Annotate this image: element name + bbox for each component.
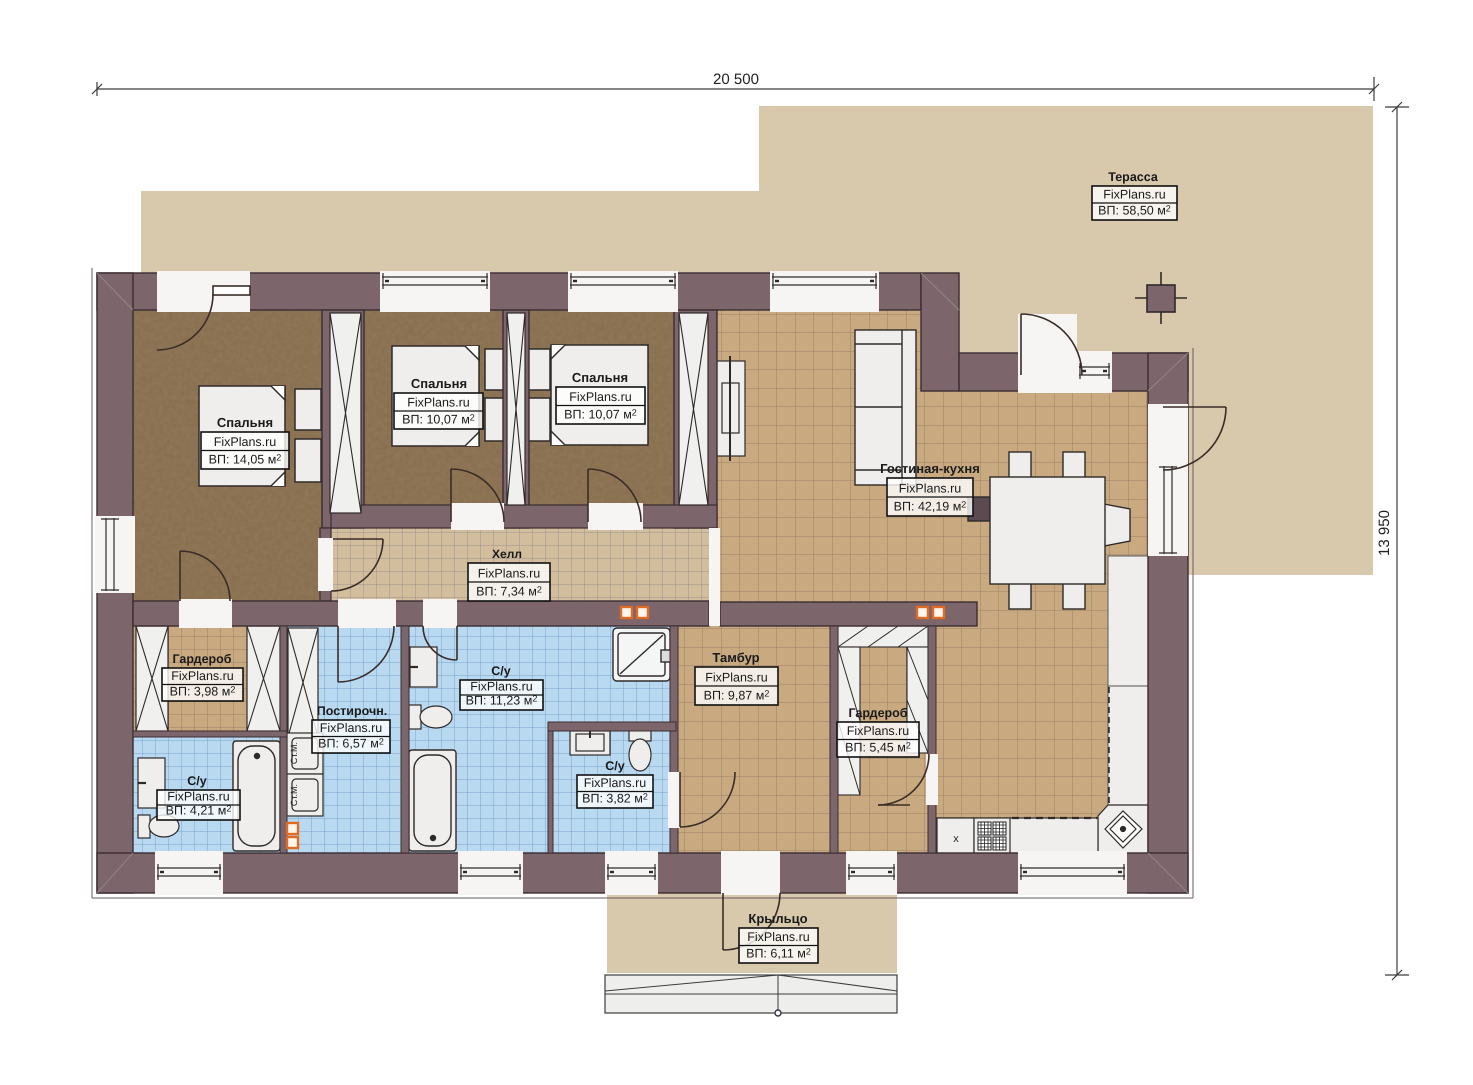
- svg-text:FixPlans.ru: FixPlans.ru: [407, 396, 470, 410]
- svg-text:Гардероб: Гардероб: [172, 652, 231, 666]
- svg-text:FixPlans.ru: FixPlans.ru: [171, 669, 234, 683]
- svg-text:20 500: 20 500: [713, 71, 759, 88]
- svg-text:х: х: [953, 833, 959, 845]
- svg-text:Спальня: Спальня: [411, 376, 467, 391]
- svg-text:FixPlans.ru: FixPlans.ru: [747, 930, 810, 944]
- svg-text:Гардероб: Гардероб: [848, 706, 907, 720]
- svg-text:ВП: 9,87 м2: ВП: 9,87 м2: [704, 689, 770, 703]
- svg-text:FixPlans.ru: FixPlans.ru: [1103, 188, 1166, 202]
- svg-text:Крыльцо: Крыльцо: [748, 911, 807, 926]
- svg-text:FixPlans.ru: FixPlans.ru: [167, 790, 230, 804]
- svg-text:FixPlans.ru: FixPlans.ru: [470, 680, 533, 694]
- svg-text:13 950: 13 950: [1376, 510, 1393, 556]
- svg-text:FixPlans.ru: FixPlans.ru: [705, 671, 768, 685]
- svg-text:ВП: 10,07 м2: ВП: 10,07 м2: [564, 408, 637, 422]
- svg-text:ВП: 5,45 м2: ВП: 5,45 м2: [845, 741, 911, 755]
- svg-text:FixPlans.ru: FixPlans.ru: [478, 567, 541, 581]
- svg-text:FixPlans.ru: FixPlans.ru: [847, 724, 910, 738]
- svg-text:Ст.М.: Ст.М.: [289, 742, 299, 764]
- svg-text:С/у: С/у: [187, 774, 207, 788]
- svg-text:FixPlans.ru: FixPlans.ru: [569, 390, 632, 404]
- svg-text:ВП: 6,57 м2: ВП: 6,57 м2: [318, 737, 384, 751]
- svg-text:ВП: 11,23 м2: ВП: 11,23 м2: [466, 694, 538, 708]
- svg-text:ВП: 3,82 м2: ВП: 3,82 м2: [582, 792, 648, 806]
- svg-text:ВП: 7,34 м2: ВП: 7,34 м2: [476, 585, 542, 599]
- svg-text:Хелл: Хелл: [492, 547, 522, 561]
- svg-text:FixPlans.ru: FixPlans.ru: [899, 482, 962, 496]
- svg-text:Спальня: Спальня: [217, 415, 273, 430]
- svg-text:FixPlans.ru: FixPlans.ru: [214, 435, 277, 449]
- svg-text:ВП: 42,19 м2: ВП: 42,19 м2: [894, 500, 967, 514]
- svg-text:Тамбур: Тамбур: [712, 650, 759, 665]
- svg-text:FixPlans.ru: FixPlans.ru: [320, 721, 383, 735]
- svg-text:ВП: 6,11 м2: ВП: 6,11 м2: [746, 947, 811, 961]
- svg-text:Спальня: Спальня: [572, 370, 628, 385]
- svg-text:ВП: 3,98 м2: ВП: 3,98 м2: [170, 685, 236, 699]
- svg-text:Постирочн.: Постирочн.: [317, 704, 387, 718]
- svg-text:Терасса: Терасса: [1108, 170, 1159, 184]
- svg-text:С/у: С/у: [491, 664, 511, 678]
- svg-text:ВП: 10,07 м2: ВП: 10,07 м2: [402, 413, 475, 427]
- svg-text:Ст.М.: Ст.М.: [289, 784, 299, 806]
- svg-text:ВП: 14,05 м2: ВП: 14,05 м2: [209, 453, 282, 467]
- svg-text:Гостиная-кухня: Гостиная-кухня: [880, 461, 980, 476]
- svg-text:ВП: 58,50 м2: ВП: 58,50 м2: [1098, 204, 1171, 218]
- svg-text:ВП: 4,21 м2: ВП: 4,21 м2: [166, 804, 232, 818]
- svg-text:С/у: С/у: [605, 759, 625, 773]
- svg-text:FixPlans.ru: FixPlans.ru: [584, 776, 647, 790]
